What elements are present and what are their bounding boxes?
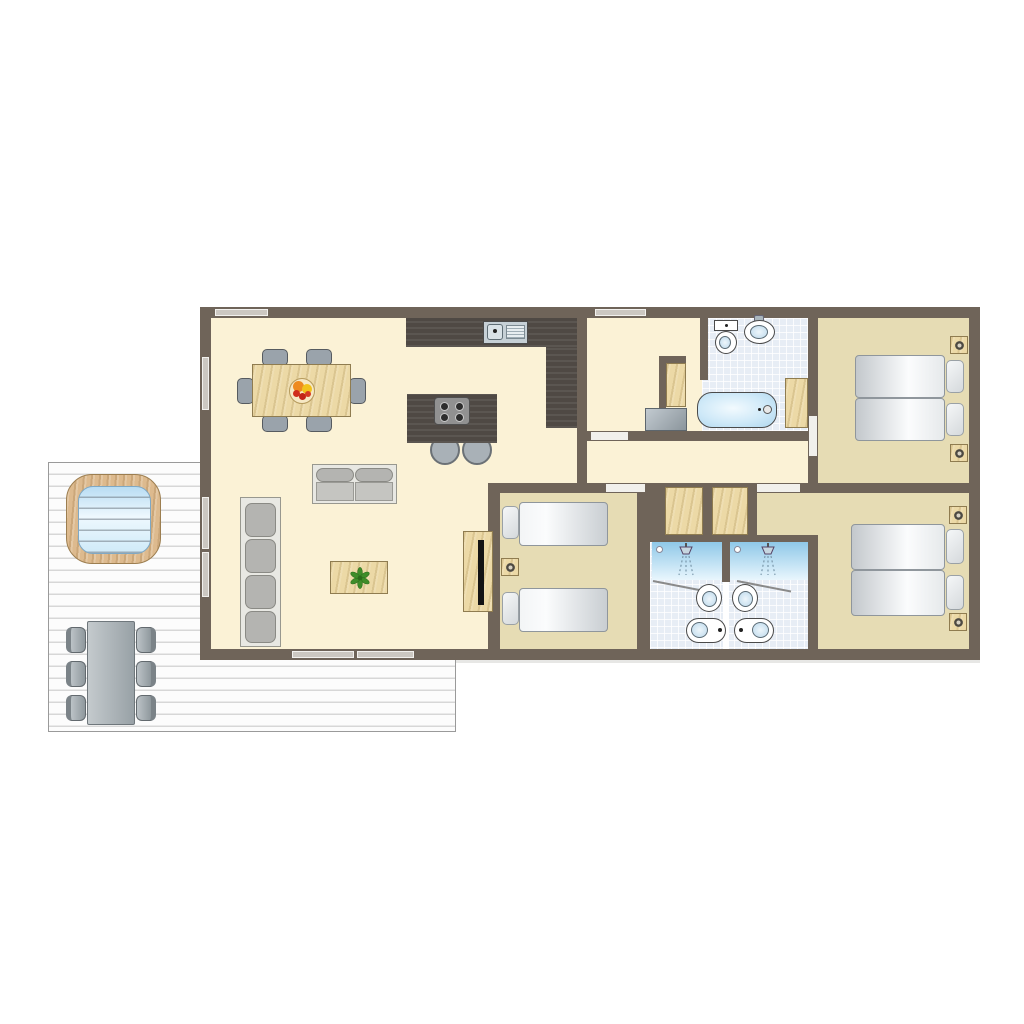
bed-pillow: [946, 529, 964, 564]
bed-mattress: [855, 398, 945, 441]
fruit-bowl: [289, 378, 315, 404]
outdoor-chair: [136, 661, 156, 687]
chaise-cushion: [245, 503, 276, 537]
sofa-two-seat: [312, 464, 397, 504]
patio-door-2: [357, 651, 414, 658]
shower-toilet-2: [734, 618, 774, 643]
floor-plan: [0, 0, 1024, 1024]
bed-mattress: [519, 588, 608, 632]
wall-shower-top: [647, 535, 818, 542]
shower-toilet-1-bowl: [691, 622, 708, 638]
shower-basin-1-inner: [702, 591, 717, 607]
wall-entrance-closet-top: [659, 356, 686, 363]
dining-chair: [262, 415, 288, 432]
lamp-icon: [506, 563, 515, 572]
door-bedroom-3: [757, 484, 800, 492]
wall-closet-right: [748, 487, 757, 542]
outdoor-chair: [136, 627, 156, 653]
toilet-cistern: [714, 320, 738, 331]
television: [478, 540, 484, 605]
outdoor-chair: [66, 627, 86, 653]
flush-button: [725, 324, 728, 327]
chaise-sofa: [240, 497, 281, 647]
kitchen-counter-side: [546, 347, 577, 428]
nightstand: [950, 336, 968, 354]
sofa-back-cushion: [355, 468, 393, 482]
fruit-red: [305, 391, 311, 397]
outdoor-dining-table: [87, 621, 135, 725]
kitchen-sink-unit: [483, 321, 528, 344]
nightstand: [950, 444, 968, 462]
sofa-back-cushion: [316, 468, 354, 482]
bed-mattress: [851, 524, 945, 570]
tv-sideboard: [463, 531, 493, 612]
washing-machine: [645, 408, 687, 431]
shower-drain-2: [734, 546, 741, 553]
burner: [455, 413, 464, 422]
shower-drain-1: [656, 546, 663, 553]
wall-closet-left: [650, 487, 665, 542]
wall-kitchen-hall: [577, 318, 587, 486]
shower-basin-1: [696, 584, 722, 612]
window-top-entrance: [595, 309, 646, 316]
house-shadow-line: [456, 660, 980, 663]
shower-toilet-1: [686, 618, 726, 643]
shower-basin-2: [732, 584, 758, 612]
chaise-cushion: [245, 611, 276, 643]
dining-chair: [306, 415, 332, 432]
window-left-2: [202, 497, 209, 549]
lamp-icon: [955, 341, 964, 350]
bathroom-wardrobe: [785, 378, 808, 428]
toilet-bowl-inner: [719, 336, 731, 349]
burner: [440, 402, 449, 411]
bed-mattress: [855, 355, 945, 398]
shower-head-icon: [672, 543, 700, 577]
wall-bedroom2-right: [637, 493, 650, 649]
door-bedroom-1: [809, 416, 817, 456]
lamp-icon: [954, 511, 963, 520]
shower-toilet-1-flush: [718, 628, 722, 632]
burner: [440, 413, 449, 422]
shower-basin-2-inner: [738, 591, 753, 607]
dining-chair: [349, 378, 366, 404]
bed-pillow: [946, 403, 964, 436]
bed-mattress: [519, 502, 608, 546]
chaise-cushion: [245, 575, 276, 609]
window-left-1: [202, 357, 209, 410]
sofa-seat: [355, 482, 393, 501]
burner: [455, 402, 464, 411]
window-left-3: [202, 552, 209, 597]
outdoor-chair: [66, 695, 86, 721]
wall-shower-mid: [722, 542, 730, 582]
shower-toilet-2-bowl: [752, 622, 769, 638]
sofa-seat: [316, 482, 354, 501]
bathtub: [697, 392, 777, 428]
sink-drainer: [506, 325, 525, 339]
wardrobe-hall-left: [665, 487, 703, 535]
wardrobe-hall-right: [712, 487, 748, 535]
hot-tub-water: [78, 486, 151, 554]
hot-tub: [66, 474, 161, 564]
bathtub-drain: [758, 408, 761, 411]
bathtub-tap: [763, 405, 772, 414]
plant-icon: [349, 567, 371, 589]
washbasin-inner: [750, 325, 768, 339]
shower-partition: [723, 582, 729, 649]
patio-door-1: [292, 651, 354, 658]
nightstand: [501, 558, 519, 576]
bed-mattress: [851, 570, 945, 616]
outdoor-chair: [66, 661, 86, 687]
nightstand: [949, 506, 967, 524]
kitchen-island: [407, 394, 497, 443]
wall-bathroom-bedroom1: [808, 318, 818, 486]
wall-closet-mid: [703, 487, 712, 542]
stove-hob: [434, 397, 470, 425]
dining-table: [252, 364, 351, 417]
window-top-living: [215, 309, 268, 316]
bed-pillow: [946, 360, 964, 393]
shower-head-icon: [754, 543, 782, 577]
bed-pillow: [946, 575, 964, 610]
bed-pillow: [502, 592, 519, 625]
nightstand: [949, 613, 967, 631]
lamp-icon: [955, 449, 964, 458]
wall-entrance-bathroom: [700, 318, 708, 380]
sink-tap: [493, 329, 497, 333]
entrance-closet: [666, 363, 686, 407]
bed-pillow: [502, 506, 519, 539]
chaise-cushion: [245, 539, 276, 573]
lamp-icon: [954, 618, 963, 627]
outdoor-chair: [136, 695, 156, 721]
toilet-bowl: [715, 331, 737, 354]
shower-toilet-2-flush: [739, 628, 743, 632]
door-hallway-entrance: [591, 432, 628, 440]
door-bedroom-2: [606, 484, 645, 492]
coffee-table: [330, 561, 388, 594]
wall-showerB-right: [808, 535, 818, 649]
washbasin: [744, 320, 775, 344]
